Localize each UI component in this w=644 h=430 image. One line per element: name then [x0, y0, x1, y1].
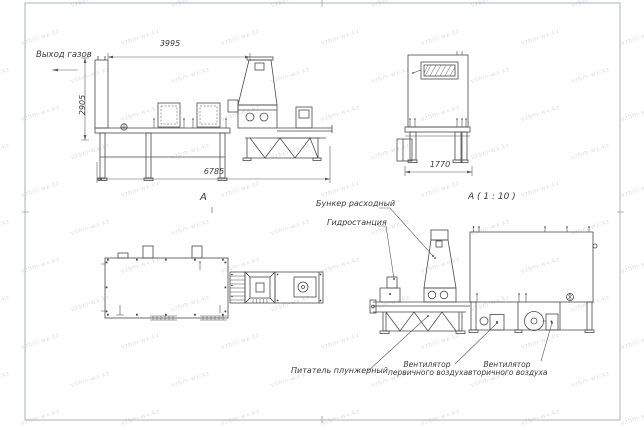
secondary-fan-callout: Вентилятор вторичного воздуха [468, 361, 546, 377]
view-a-label: А [200, 193, 207, 203]
side-elevation-view [397, 51, 470, 163]
callout-leaders [368, 208, 553, 371]
gas-outlet-label: Выход газов [36, 51, 92, 60]
plan-view [101, 207, 323, 320]
dimension-2905: 2905 [77, 88, 89, 122]
drawing-canvas: vzbm-wx.kzvzbm-wx.kzvzbm-wx.kzvzbm-wx.kz… [0, 0, 644, 430]
dimension-3995: 3995 [148, 40, 192, 48]
detail-a-label: А ( 1 : 10 ) [468, 193, 516, 202]
front-view-dimensions [52, 53, 330, 183]
bunker-callout: Бункер расходный [316, 200, 395, 208]
primary-fan-callout: Вентилятор первичного воздуха [388, 361, 466, 377]
drawing-frame [22, 0, 624, 423]
front-elevation-view [95, 56, 332, 181]
dimension-1770: 1770 [415, 161, 465, 169]
hydrostation-callout: Гидростанция [327, 219, 387, 227]
feeder-callout: Питатель плунжерный [291, 367, 388, 375]
primary-fan-line2: первичного воздуха [388, 369, 466, 377]
detail-a-view [370, 226, 597, 334]
dimension-6785: 6785 [190, 168, 238, 176]
secondary-fan-line2: вторичного воздуха [468, 369, 546, 377]
